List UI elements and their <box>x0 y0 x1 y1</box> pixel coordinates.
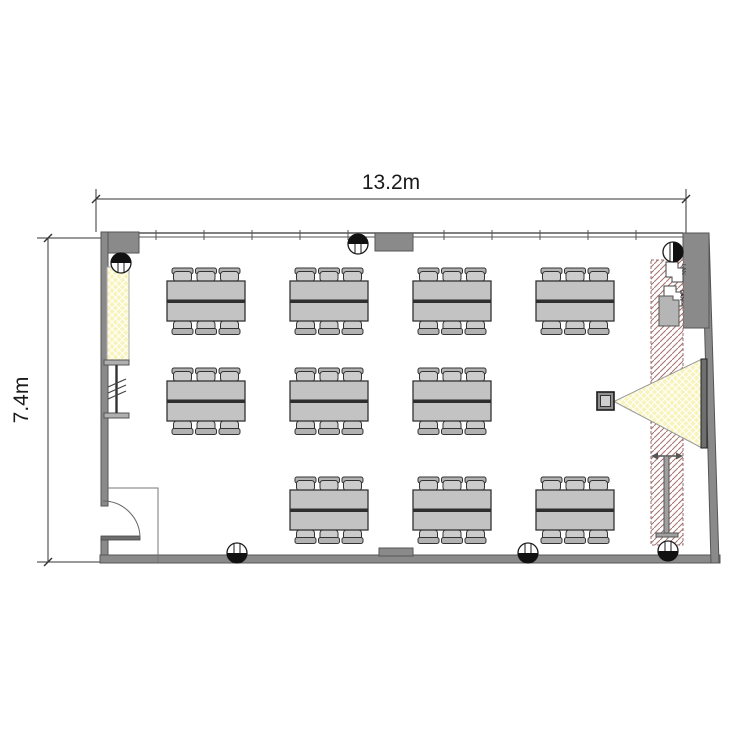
ceiling-light-icon <box>518 543 538 563</box>
room-height-label: 7.4m <box>10 377 33 424</box>
door-swing-arc <box>103 501 140 538</box>
bottom-wall <box>100 548 720 563</box>
tables-layer <box>167 268 614 544</box>
ceiling-light-icon <box>663 242 683 262</box>
lan-label-1: LAN <box>680 264 686 275</box>
table-group <box>167 268 245 335</box>
table-group <box>536 268 614 335</box>
room-width-label: 13.2m <box>362 171 420 194</box>
entrance-alcove <box>108 488 158 562</box>
ceiling-light-icon <box>348 234 368 254</box>
window-light-strip <box>107 267 129 361</box>
door <box>101 501 140 540</box>
table-group <box>413 368 491 435</box>
ac-unit <box>375 233 413 251</box>
table-group <box>167 368 245 435</box>
table-group <box>290 368 368 435</box>
table-group <box>290 268 368 335</box>
table-group <box>536 477 614 544</box>
lan-label-2: LAN <box>678 290 684 301</box>
ceiling-light-icon <box>658 541 678 561</box>
floor-plan: 13.2m 7.4m <box>0 0 750 750</box>
dimension-width: 13.2m <box>92 171 690 233</box>
ceiling-light-icon <box>227 543 247 563</box>
floorplan-canvas: 13.2m 7.4m <box>0 0 750 750</box>
projection-screen <box>701 359 707 448</box>
projector-icon <box>597 392 614 410</box>
table-group <box>290 477 368 544</box>
door-leaf <box>101 536 140 540</box>
table-group <box>413 268 491 335</box>
dimension-height: 7.4m <box>10 234 112 566</box>
pillar <box>683 233 709 328</box>
wall-bump <box>379 548 413 556</box>
table-group <box>413 477 491 544</box>
equipment-box <box>659 296 679 326</box>
ceiling-light-icon <box>111 253 131 273</box>
